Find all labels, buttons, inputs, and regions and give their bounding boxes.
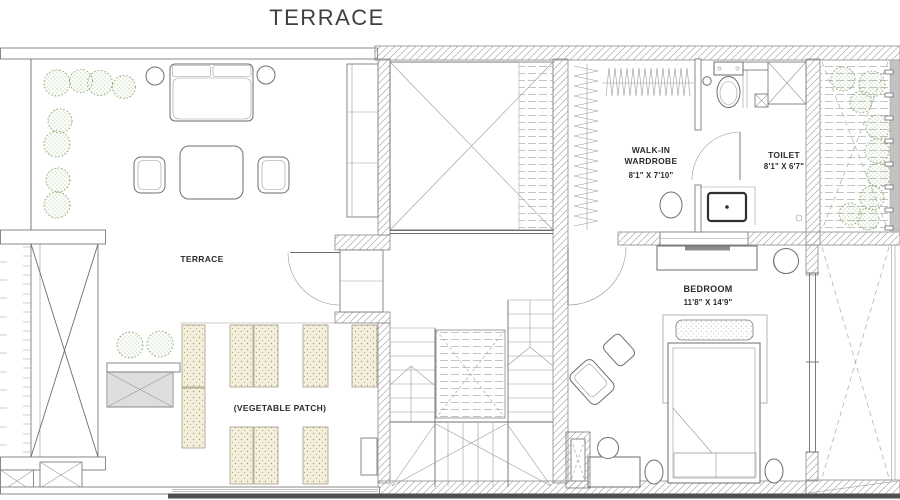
bedroom-door bbox=[568, 247, 626, 305]
pergola bbox=[0, 230, 106, 492]
toilet-label: TOILET bbox=[768, 150, 800, 160]
lounge-chair bbox=[567, 332, 636, 407]
wall bbox=[378, 323, 390, 483]
planting-bed bbox=[254, 427, 278, 484]
planting-bed bbox=[230, 427, 253, 484]
door-jamb bbox=[335, 235, 390, 250]
stool bbox=[660, 192, 682, 218]
stair-zone bbox=[390, 62, 553, 487]
floor-drain bbox=[796, 215, 802, 221]
bedside-table bbox=[765, 459, 783, 483]
planting-bed bbox=[182, 388, 205, 448]
wall bbox=[748, 232, 900, 245]
vegetable-patch-label: (VEGETABLE PATCH) bbox=[234, 403, 326, 413]
wardrobe-zone: WALK-IN WARDROBE 8'1" X 7'10" bbox=[574, 64, 694, 230]
bedroom-dimensions: 11'8" X 14'9" bbox=[684, 298, 733, 307]
planting-bed bbox=[182, 325, 205, 387]
planter-ledge bbox=[347, 64, 378, 217]
terrace-railing bbox=[1, 487, 380, 494]
toilet-zone: TOILET 8'1" X 6'7" bbox=[692, 59, 806, 232]
planting-bed bbox=[230, 325, 253, 387]
staircase bbox=[390, 300, 553, 487]
planter-box bbox=[361, 438, 377, 475]
wall bbox=[806, 452, 818, 481]
garden-bench bbox=[107, 363, 180, 407]
trellis-ticks bbox=[23, 247, 31, 452]
floor-plan-page: TERRACE bbox=[0, 0, 900, 500]
edge-ticks bbox=[0, 262, 7, 445]
ground-line bbox=[168, 494, 900, 499]
wall bbox=[378, 59, 390, 235]
planting-bed bbox=[303, 325, 328, 387]
wall bbox=[553, 59, 568, 483]
deck-garden-zone bbox=[820, 60, 900, 232]
terrace-door bbox=[288, 253, 340, 306]
bedside-table bbox=[645, 460, 663, 484]
dresser bbox=[657, 246, 757, 270]
side-table bbox=[257, 66, 275, 84]
bedroom-label: BEDROOM bbox=[683, 284, 732, 294]
coffee-table-set bbox=[134, 146, 289, 199]
sofa bbox=[170, 64, 253, 121]
desk bbox=[588, 438, 640, 488]
hanger-rail-left bbox=[574, 64, 598, 230]
planting-bed bbox=[303, 427, 328, 484]
floor-plan-drawing: TERRACE bbox=[0, 0, 900, 500]
upper-void-skylight bbox=[390, 62, 553, 230]
wall bbox=[618, 232, 660, 245]
swivel-chair bbox=[774, 249, 799, 274]
bed bbox=[668, 320, 760, 483]
top-parapet bbox=[1, 48, 378, 59]
planting-bed bbox=[254, 325, 278, 387]
bedroom-zone: BEDROOM 11'8" X 14'9" bbox=[566, 246, 799, 488]
wardrobe-label-line1: WALK-IN bbox=[632, 145, 670, 155]
toilet-door bbox=[692, 132, 740, 180]
basin bbox=[703, 77, 711, 85]
terrace-label: TERRACE bbox=[180, 254, 223, 264]
shower bbox=[700, 187, 755, 225]
door-jamb bbox=[335, 312, 390, 323]
pillow bbox=[676, 320, 753, 340]
wardrobe-label-line2: WARDROBE bbox=[625, 156, 678, 166]
page-title: TERRACE bbox=[269, 5, 385, 30]
side-table bbox=[146, 67, 164, 85]
duct-shaft bbox=[566, 432, 590, 488]
wc-toilet bbox=[714, 62, 743, 108]
hanger-rail-top bbox=[602, 68, 694, 96]
planting-bed bbox=[352, 325, 377, 387]
wardrobe-dimensions: 8'1" X 7'10" bbox=[629, 171, 674, 180]
bedroom-window bbox=[806, 273, 819, 452]
wall bbox=[806, 245, 818, 275]
shelf-strip bbox=[519, 62, 553, 230]
wall bbox=[806, 59, 820, 245]
top-wall bbox=[375, 46, 900, 60]
stair-void bbox=[436, 330, 505, 418]
balcony-zone bbox=[822, 245, 895, 480]
toilet-dimensions: 8'1" X 6'7" bbox=[764, 162, 804, 171]
